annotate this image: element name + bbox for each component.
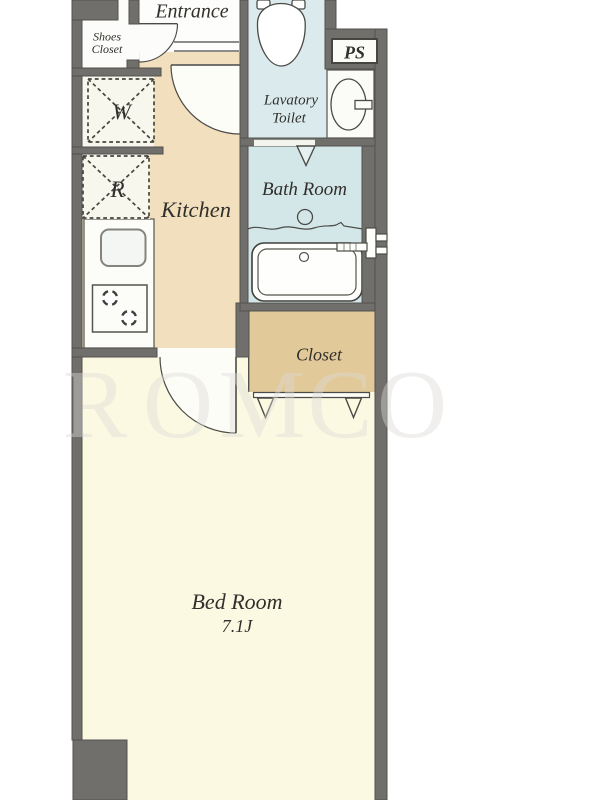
svg-text:Lavatory: Lavatory xyxy=(263,93,319,109)
svg-text:Closet: Closet xyxy=(92,42,123,56)
svg-text:O: O xyxy=(143,351,213,458)
svg-text:M: M xyxy=(219,351,305,458)
svg-text:Kitchen: Kitchen xyxy=(160,197,231,222)
svg-text:Bed Room: Bed Room xyxy=(191,589,282,614)
svg-text:W: W xyxy=(112,99,132,124)
svg-text:R: R xyxy=(63,351,128,458)
svg-text:PS: PS xyxy=(343,43,365,63)
svg-text:Bath Room: Bath Room xyxy=(262,179,347,200)
svg-text:Entrance: Entrance xyxy=(154,1,228,23)
svg-text:Toilet: Toilet xyxy=(272,111,306,127)
svg-text:R: R xyxy=(109,177,124,202)
svg-text:7.1J: 7.1J xyxy=(222,616,254,636)
svg-text:C: C xyxy=(308,351,373,458)
svg-text:O: O xyxy=(377,351,447,458)
